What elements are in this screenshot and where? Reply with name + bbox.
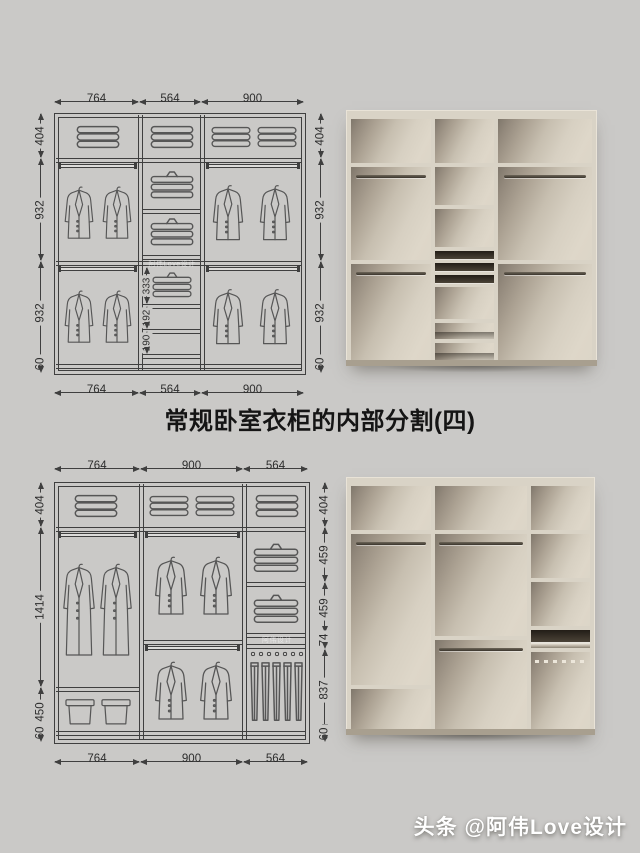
dimension-v-inner: 190 <box>140 331 154 354</box>
cabinet-cell <box>435 486 527 530</box>
suit-jacket-icon <box>256 169 294 257</box>
hanging-rod <box>356 542 426 545</box>
suit-jacket-icon <box>196 538 236 634</box>
shelf-line <box>142 354 201 359</box>
dimension-v: 404 <box>32 113 50 158</box>
cabinet-cell <box>531 486 590 530</box>
cabinet-cell <box>435 209 494 247</box>
page-title: 常规卧室衣柜的内部分割(四) <box>0 401 640 436</box>
shelf-line <box>56 731 306 736</box>
shelf-shadow <box>435 353 494 360</box>
folded-shirt-stack-icon <box>149 169 195 201</box>
dimension-h: 764 <box>54 749 140 766</box>
suit-jacket-icon <box>99 169 135 257</box>
shelf-line <box>56 687 139 692</box>
drawer-slot <box>435 251 494 259</box>
dimension-v: 60 <box>316 725 334 742</box>
trousers-icon <box>282 656 293 728</box>
suit-jacket-icon <box>151 538 191 634</box>
dimension-h: 564 <box>243 456 308 473</box>
suit-jacket-icon <box>151 652 191 730</box>
dimension-v: 404 <box>316 482 334 527</box>
folded-shirt-stack-icon <box>149 216 195 248</box>
suit-jacket-icon <box>209 169 247 257</box>
dimension-h: 764 <box>54 380 139 397</box>
cabinet-cell <box>435 640 527 729</box>
shelf-line <box>56 364 302 369</box>
shelf-line <box>56 158 302 163</box>
suit-jacket-icon <box>209 273 247 361</box>
folded-shirt-stack-icon <box>151 271 193 299</box>
cabinet-cell <box>531 652 590 729</box>
dimension-v: 932 <box>312 261 330 364</box>
dimension-v: 459 <box>316 527 334 582</box>
dimension-h: 564 <box>243 749 308 766</box>
hanging-rod <box>145 646 240 650</box>
suit-jacket-icon <box>196 652 236 730</box>
dimension-h: 764 <box>54 89 139 106</box>
partition-line <box>139 484 144 740</box>
shelf-line <box>143 640 242 645</box>
folded-clothes-icon <box>194 494 236 518</box>
hanging-rod <box>504 272 586 275</box>
cabinet-cell <box>351 119 431 163</box>
long-coat-icon <box>97 538 135 682</box>
cabinet-cell <box>435 167 494 205</box>
dimension-v: 60 <box>312 355 330 373</box>
shelf-line <box>56 527 306 532</box>
dimension-h: 900 <box>140 456 243 473</box>
hanging-rod <box>145 533 240 537</box>
folded-clothes-icon <box>75 125 121 149</box>
trousers-icon <box>293 656 304 728</box>
wardrobe-diagram-top: 阿伟Love设计 764 564 900 764 564 900 404 932… <box>30 85 332 398</box>
folded-clothes-icon <box>210 125 252 149</box>
floor-shadow <box>344 735 597 744</box>
partition-line <box>242 484 247 740</box>
faint-watermark: 阿伟设计 <box>251 635 303 645</box>
drawer-front <box>531 643 590 648</box>
hanging-rod <box>206 164 300 168</box>
drawer-slot <box>531 630 590 642</box>
cabinet-cell <box>351 167 431 260</box>
dimension-v: 74 <box>316 631 334 649</box>
shelf-shadow <box>435 332 494 339</box>
wardrobe-diagram-bottom: 阿伟设计 764 900 564 764 900 564 404 1414 45… <box>30 450 336 765</box>
dimension-v: 404 <box>312 113 330 158</box>
infographic-page: 阿伟Love设计 764 564 900 764 564 900 404 932… <box>0 0 640 853</box>
long-coat-icon <box>60 538 98 682</box>
hanging-rod <box>439 648 523 651</box>
hanger-clips <box>535 660 586 663</box>
suit-jacket-icon <box>256 273 294 361</box>
storage-box-icon <box>65 695 95 728</box>
dimension-h: 764 <box>54 456 140 473</box>
trousers-icon <box>249 656 260 728</box>
folded-clothes-icon <box>256 125 298 149</box>
cabinet-cell <box>498 167 592 260</box>
cabinet-cell <box>498 264 592 360</box>
dimension-v: 60 <box>32 355 50 373</box>
hanging-rod <box>58 533 137 537</box>
hanging-rod <box>58 164 137 168</box>
folded-clothes-icon <box>148 494 190 518</box>
dimension-v: 932 <box>32 261 50 364</box>
suit-jacket-icon <box>99 273 135 361</box>
floor-shadow <box>344 366 599 375</box>
cabinet-cell <box>435 119 494 163</box>
hanging-rod <box>439 542 523 545</box>
cabinet-cell <box>498 119 592 163</box>
dimension-v: 932 <box>312 158 330 261</box>
dimension-v: 459 <box>316 582 334 633</box>
folded-clothes-icon <box>254 494 300 518</box>
cabinet-cell <box>531 582 590 626</box>
drawer-slot <box>435 263 494 271</box>
cabinet-cell <box>351 534 431 685</box>
cabinet-cell <box>351 264 431 360</box>
dimension-v-inner: 333 <box>140 267 154 304</box>
dimension-h: 564 <box>139 380 201 397</box>
cabinet-cell <box>435 534 527 636</box>
suit-jacket-icon <box>61 169 97 257</box>
dimension-v: 1414 <box>32 527 50 687</box>
wardrobe-render-bottom <box>346 477 595 735</box>
folded-clothes-icon <box>73 494 119 518</box>
cabinet-cell <box>531 534 590 578</box>
folded-clothes-icon <box>149 125 195 149</box>
shelf-line <box>142 209 201 214</box>
hanging-rod <box>504 175 586 178</box>
trousers-icon <box>271 656 282 728</box>
cabinet-cell <box>435 287 494 319</box>
dimension-h: 900 <box>201 380 304 397</box>
trousers-icon <box>260 656 271 728</box>
hanging-rod <box>58 267 137 271</box>
wardrobe-render-top <box>346 110 597 366</box>
brand-watermark: 头条 @阿伟Love设计 <box>414 811 627 841</box>
hanging-rod <box>356 175 426 178</box>
storage-box-icon <box>101 695 131 728</box>
hanging-rod <box>206 267 300 271</box>
cabinet-cell <box>351 689 431 729</box>
hanging-rod <box>356 272 426 275</box>
dimension-h: 900 <box>201 89 304 106</box>
cabinet-cell <box>351 486 431 530</box>
shelf-line <box>247 582 306 587</box>
dimension-v-inner: 192 <box>140 306 154 329</box>
dimension-h: 564 <box>139 89 201 106</box>
dimension-v: 837 <box>316 649 334 731</box>
dimension-v: 932 <box>32 158 50 261</box>
folded-shirt-stack-icon <box>252 542 300 574</box>
drawer-slot <box>435 275 494 283</box>
suit-jacket-icon <box>61 273 97 361</box>
dimension-v: 404 <box>32 482 50 527</box>
folded-shirt-stack-icon <box>252 593 300 625</box>
dimension-h: 900 <box>140 749 243 766</box>
dimension-v: 60 <box>32 724 50 742</box>
